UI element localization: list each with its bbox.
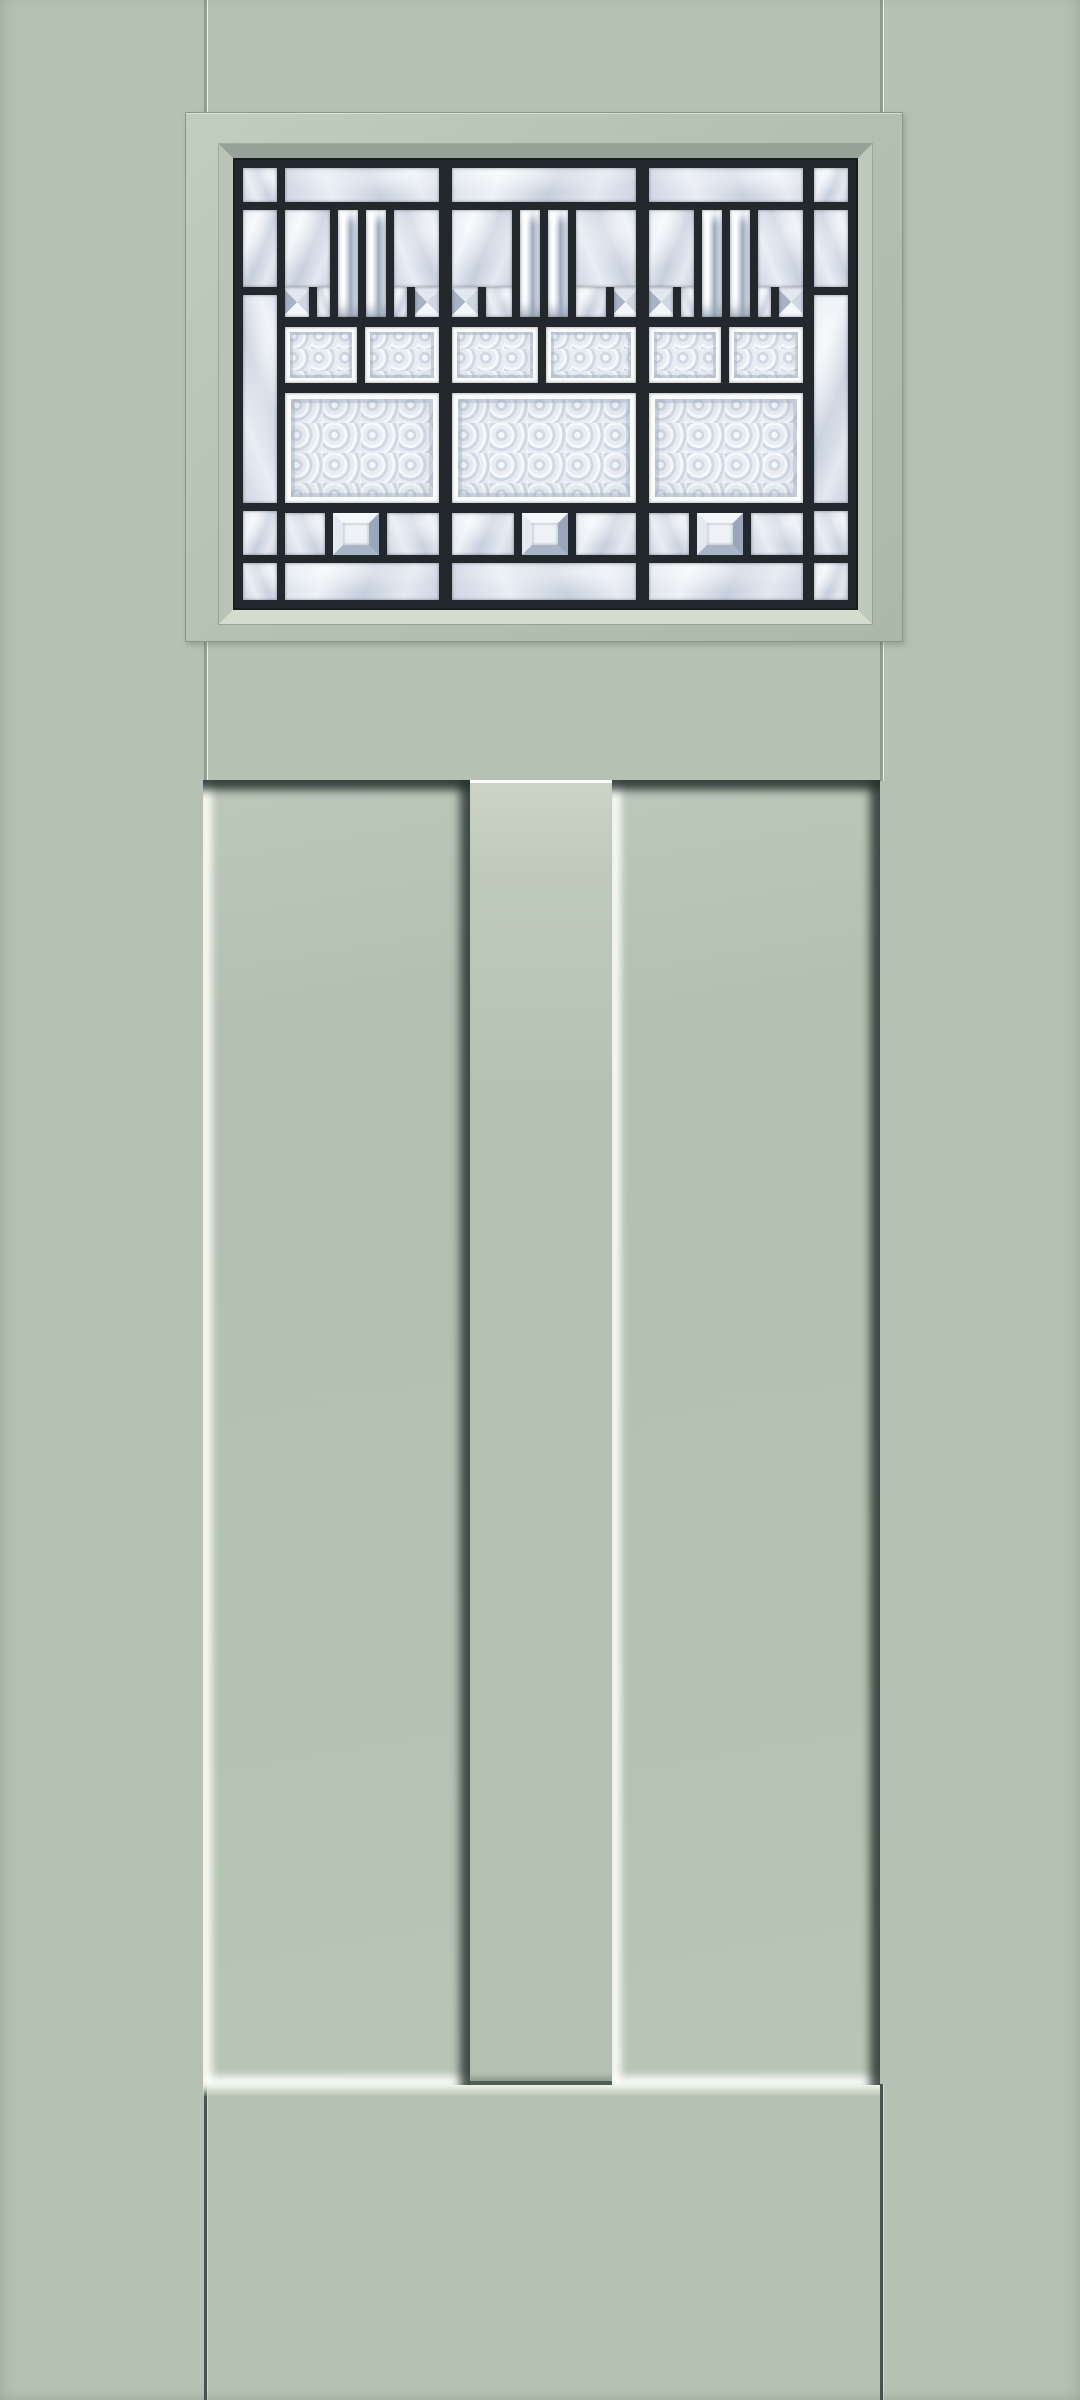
glass-pane-gr [546, 327, 636, 383]
glass-pane-clear [285, 210, 330, 287]
glass-pane-clear [681, 287, 694, 317]
bottom-rail-highlight [203, 2085, 880, 2097]
glass-pane-clear [394, 287, 407, 317]
door-slab [0, 0, 1080, 2400]
glass-pane-pyr [452, 287, 478, 317]
glass-pane-bar [520, 210, 540, 317]
glass-pane-clear [814, 168, 848, 202]
leaded-glass-window [233, 158, 858, 610]
stile-groove-bottom-left [204, 2084, 207, 2400]
glass-pane-bar [366, 210, 386, 317]
stile-groove-mid-left [204, 642, 207, 781]
glass-pane-clear [758, 210, 803, 287]
glass-pane-clear [814, 295, 848, 503]
glass-pane-gr [452, 327, 538, 383]
glass-pane-clear [387, 513, 439, 555]
glass-pane-bsq [522, 513, 568, 555]
glass-pane-clear [576, 513, 636, 555]
glass-pane-clear [814, 563, 848, 600]
glass-pane-gr [729, 327, 803, 383]
glass-pane-clear [452, 513, 514, 555]
glass-pane-clear [452, 210, 512, 287]
glass-pane-clear [243, 210, 277, 287]
glass-pane-bar [730, 210, 750, 317]
glass-pane-clear [285, 168, 439, 202]
stile-groove-top-right [880, 0, 883, 113]
left-door-panel [203, 780, 470, 2085]
glass-pane-pyr [415, 287, 439, 317]
stile-groove-mid-right [880, 642, 883, 781]
glass-pane-clear [452, 563, 636, 600]
glass-pane-clear [576, 210, 636, 287]
glass-pane-grb [285, 393, 439, 503]
glass-pane-clear [243, 295, 277, 503]
stile-groove-top-left [204, 0, 207, 113]
glass-pane-clear [758, 287, 771, 317]
glass-pane-clear [814, 511, 848, 555]
glass-pane-clear [649, 513, 689, 555]
glass-pane-pyr [614, 287, 636, 317]
glass-pane-gr [285, 327, 357, 383]
glass-pane-bsq [697, 513, 743, 555]
glass-pane-clear [452, 168, 636, 202]
glass-pane-pyr [649, 287, 673, 317]
glass-pane-clear [751, 513, 803, 555]
stile-groove-bottom-right [880, 2084, 883, 2400]
right-door-panel [612, 780, 880, 2085]
glass-pane-clear [649, 168, 803, 202]
glass-pane-clear [285, 513, 325, 555]
glass-pane-clear [285, 563, 439, 600]
glass-pane-clear [814, 210, 848, 287]
glass-pane-clear [576, 287, 606, 317]
glass-pane-clear [243, 511, 277, 555]
glass-pane-gr [365, 327, 439, 383]
glass-pane-bar [548, 210, 568, 317]
glass-pane-clear [394, 210, 439, 287]
glass-pane-clear [649, 563, 803, 600]
glass-pane-clear [486, 287, 512, 317]
glass-pane-pyr [285, 287, 309, 317]
glass-pane-clear [317, 287, 330, 317]
glass-pane-gr [649, 327, 721, 383]
glass-pane-clear [243, 563, 277, 600]
glass-pane-bar [338, 210, 358, 317]
glass-pane-clear [243, 168, 277, 202]
glass-pane-pyr [779, 287, 803, 317]
glass-pane-bsq [333, 513, 379, 555]
center-stile [470, 780, 612, 2085]
glass-pane-clear [649, 210, 694, 287]
glass-pane-bar [702, 210, 722, 317]
glass-pane-grb [649, 393, 803, 503]
glass-pane-grb [452, 393, 636, 503]
